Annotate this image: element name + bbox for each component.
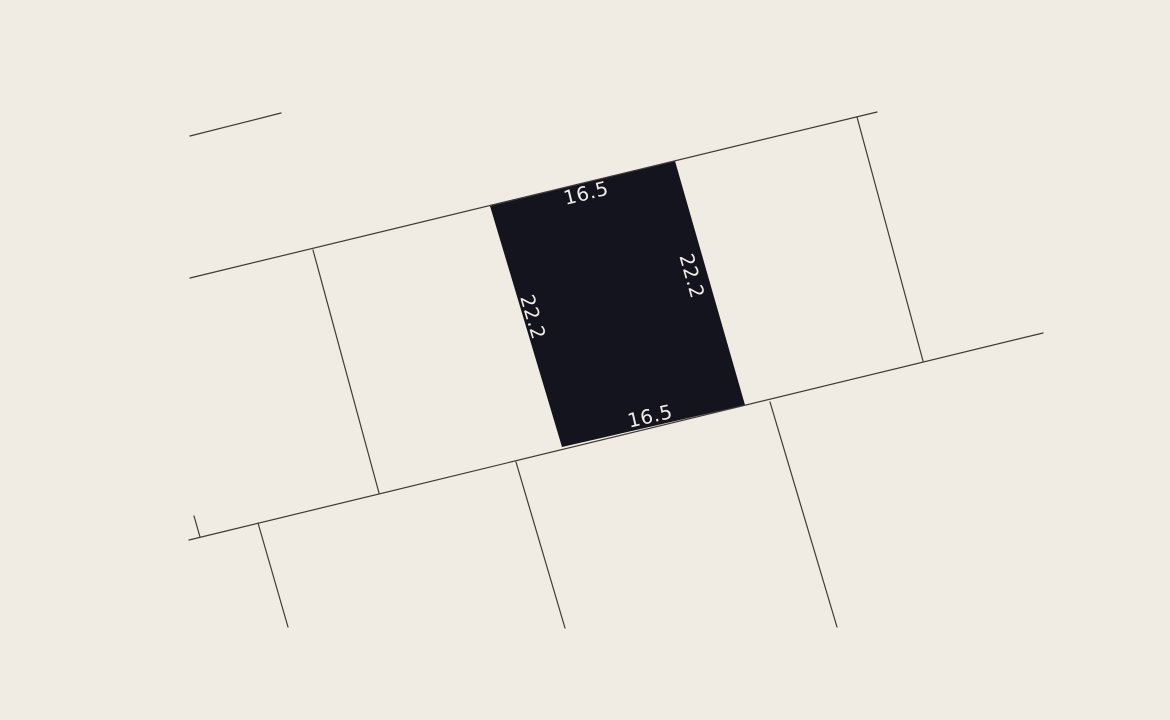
parcel-map-svg: 16.522.222.216.5 [0, 0, 1170, 720]
parcel-map-stage: 16.522.222.216.5 [0, 0, 1170, 720]
